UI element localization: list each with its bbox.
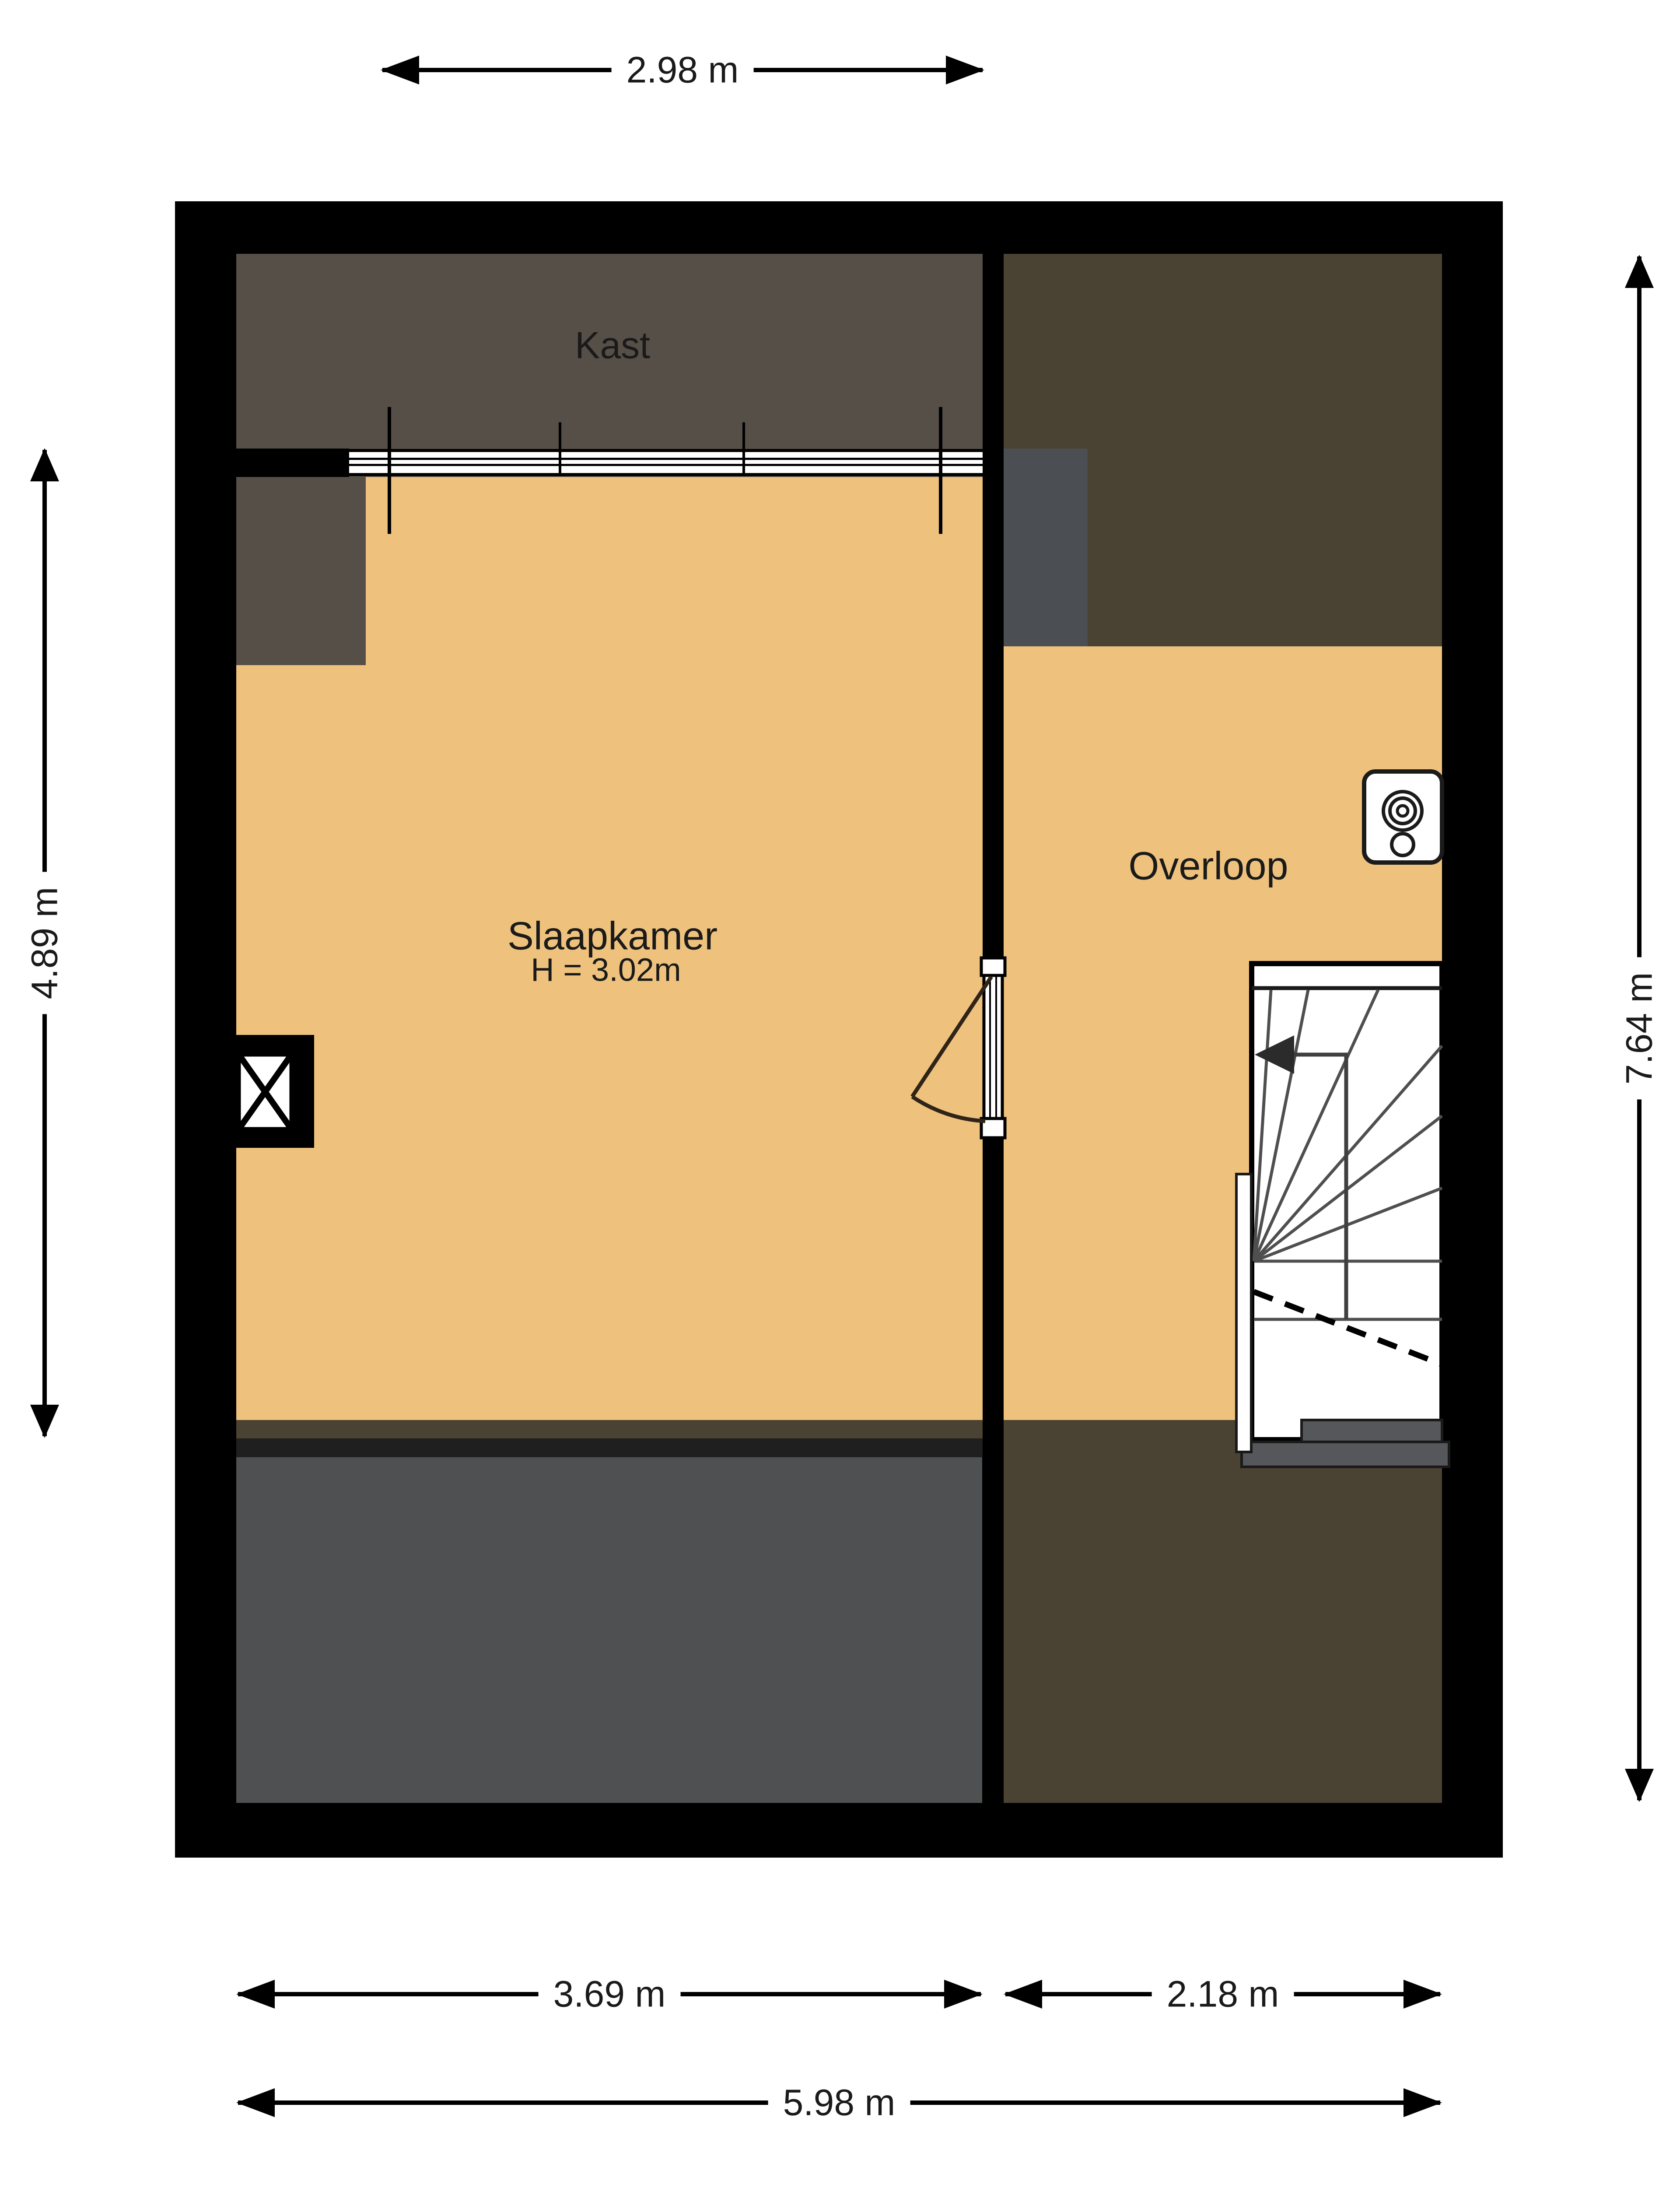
dimension-top: 2.98 m: [381, 46, 984, 94]
roof-void-area: [236, 1457, 982, 1803]
door-leaf-open: [912, 977, 991, 1097]
window-wall-stub: [236, 449, 349, 477]
window-tick: [939, 407, 942, 534]
dimension-bottom-total: 5.98 m: [236, 2079, 1442, 2127]
dimension-bottom-right-label: 2.18 m: [1152, 1973, 1294, 2016]
floorplan-canvas: Kast Slaapkamer H = 3.02m Overloop 2.98 …: [0, 0, 1680, 2188]
door-swing-arc: [912, 1097, 985, 1121]
dimension-top-label: 2.98 m: [612, 49, 754, 91]
attic-gray-block: [1004, 449, 1088, 646]
window-icon: [349, 449, 983, 476]
kast-label: Kast: [575, 324, 650, 368]
stair-landing-step: [1302, 1420, 1442, 1442]
dimension-right-label: 7.64 m: [1618, 957, 1661, 1100]
dimension-bottom-right: 2.18 m: [1004, 1970, 1442, 2018]
door-leaf-closed: [984, 975, 1002, 1119]
interior-wall-lower: [983, 1138, 1004, 1420]
bedroom-bottom-brown-strip: [236, 1420, 983, 1438]
overloop-label: Overloop: [1128, 844, 1288, 889]
dimension-bottom-left-label: 3.69 m: [539, 1973, 681, 2016]
door-swing-icon: [888, 941, 1015, 1151]
door-frame: [981, 958, 1005, 975]
window-divider: [559, 422, 561, 476]
boiler-unit-icon: [1356, 766, 1446, 866]
interior-wall-upper: [983, 254, 1004, 958]
window-divider: [742, 422, 745, 476]
stair-railing: [1236, 1174, 1251, 1452]
window-tick: [388, 407, 391, 534]
window-glass-line: [349, 464, 983, 466]
bedroom-bottom-dark-line: [236, 1438, 983, 1457]
stair-landing-step: [1242, 1442, 1449, 1467]
slaapkamer-height-label: H = 3.02m: [531, 951, 681, 989]
dimension-left-label: 4.89 m: [24, 872, 66, 1014]
dimension-right: 7.64 m: [1615, 255, 1663, 1802]
kast-recess-block: [236, 477, 366, 665]
dimension-left: 4.89 m: [21, 448, 69, 1438]
shaft-x-icon: [232, 1031, 319, 1153]
window-glass-line: [349, 458, 983, 460]
dimension-bottom-total-label: 5.98 m: [768, 2082, 910, 2124]
dimension-bottom-left: 3.69 m: [236, 1970, 983, 2018]
winder-staircase-icon: [1216, 954, 1461, 1483]
